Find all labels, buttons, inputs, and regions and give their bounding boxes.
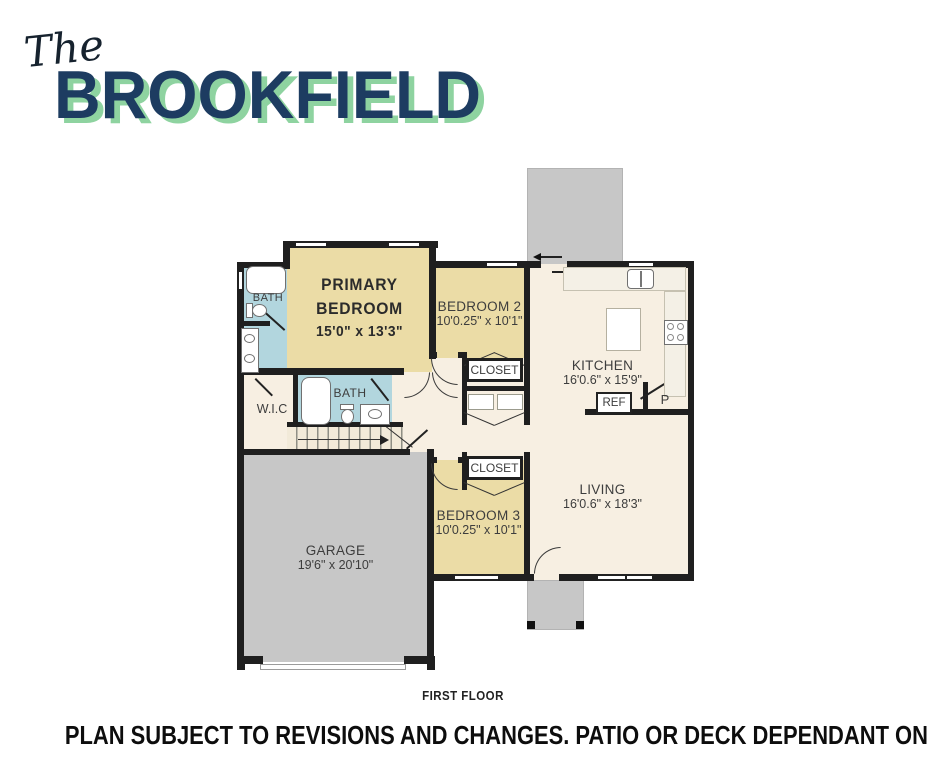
kitchen-counter — [563, 267, 686, 291]
window — [296, 241, 326, 248]
window-mullion — [625, 574, 627, 581]
kitchen-dims: 16'0.6" x 15'9" — [530, 373, 675, 387]
bathtub-icon — [246, 266, 286, 294]
wall — [293, 372, 298, 427]
wall — [559, 574, 600, 581]
window — [389, 241, 419, 248]
wall — [462, 386, 529, 391]
closet-label: CLOSET — [470, 363, 518, 377]
wall — [688, 261, 694, 581]
kitchen-label: KITCHEN 16'0.6" x 15'9" — [530, 358, 675, 387]
wall — [237, 368, 404, 375]
burner-icon — [677, 334, 684, 341]
wic-label: W.I.C — [248, 402, 296, 416]
stair-direction-line — [298, 439, 382, 440]
primary-bath-label: BATH — [248, 292, 288, 304]
page-title: BROOKFIELD — [54, 56, 481, 134]
wall — [240, 449, 410, 455]
bedroom2-label: BEDROOM 2 10'0.25" x 10'1" — [432, 299, 527, 328]
stair-arrow-icon — [380, 435, 389, 445]
closet-label: CLOSET — [470, 461, 518, 475]
sink-divider — [640, 271, 642, 287]
sink-icon — [368, 409, 382, 419]
toilet-icon — [341, 409, 354, 424]
sink-icon — [244, 334, 255, 343]
slider-arrow-line — [540, 256, 562, 258]
garage-label: GARAGE 19'6" x 20'10" — [242, 543, 429, 572]
bedroom2-dims: 10'0.25" x 10'1" — [432, 314, 527, 328]
burner-icon — [667, 334, 674, 341]
closet-shelf — [468, 394, 494, 410]
deck-area — [527, 168, 623, 265]
pantry-label: P — [655, 392, 675, 407]
garage-door — [260, 664, 406, 670]
window — [487, 261, 519, 268]
disclaimer-text: PLAN SUBJECT TO REVISIONS AND CHANGES. P… — [65, 722, 862, 751]
bathtub-icon — [301, 377, 331, 425]
closet-hall-label-box: CLOSET — [466, 358, 523, 382]
living-dims: 16'0.6" x 18'3" — [530, 497, 675, 511]
wall — [237, 321, 270, 326]
bedroom3-label: BEDROOM 3 10'0.25" x 10'1" — [430, 508, 527, 537]
fridge-label: REF — [603, 397, 626, 409]
garage-dims: 19'6" x 20'10" — [242, 558, 429, 572]
floor-label: FIRST FLOOR — [325, 689, 601, 703]
wall — [283, 241, 290, 269]
hall-bath-label: BATH — [330, 386, 370, 400]
stoop-post — [527, 621, 535, 629]
closet-shelf — [497, 394, 523, 410]
wall — [324, 241, 391, 248]
burner-icon — [677, 323, 684, 330]
fridge-box: REF — [596, 392, 632, 414]
kitchen-island — [606, 308, 641, 351]
sink-icon — [244, 354, 255, 363]
primary-bedroom-label: PRIMARY BEDROOM 15'0" x 13'3" — [293, 273, 426, 342]
toilet-icon — [252, 304, 267, 317]
bedroom3-dims: 10'0.25" x 10'1" — [430, 523, 527, 537]
slider-arrow-left-icon — [533, 253, 541, 261]
primary-bedroom-dims: 15'0" x 13'3" — [293, 321, 426, 342]
wall — [430, 261, 489, 268]
wall — [524, 261, 530, 425]
stoop-post — [576, 621, 584, 629]
window — [455, 574, 500, 581]
closet-bed3-label-box: CLOSET — [466, 456, 523, 480]
burner-icon — [667, 323, 674, 330]
living-label: LIVING 16'0.6" x 18'3" — [530, 482, 675, 511]
floorplan-page: The BROOKFIELD — [0, 0, 927, 768]
